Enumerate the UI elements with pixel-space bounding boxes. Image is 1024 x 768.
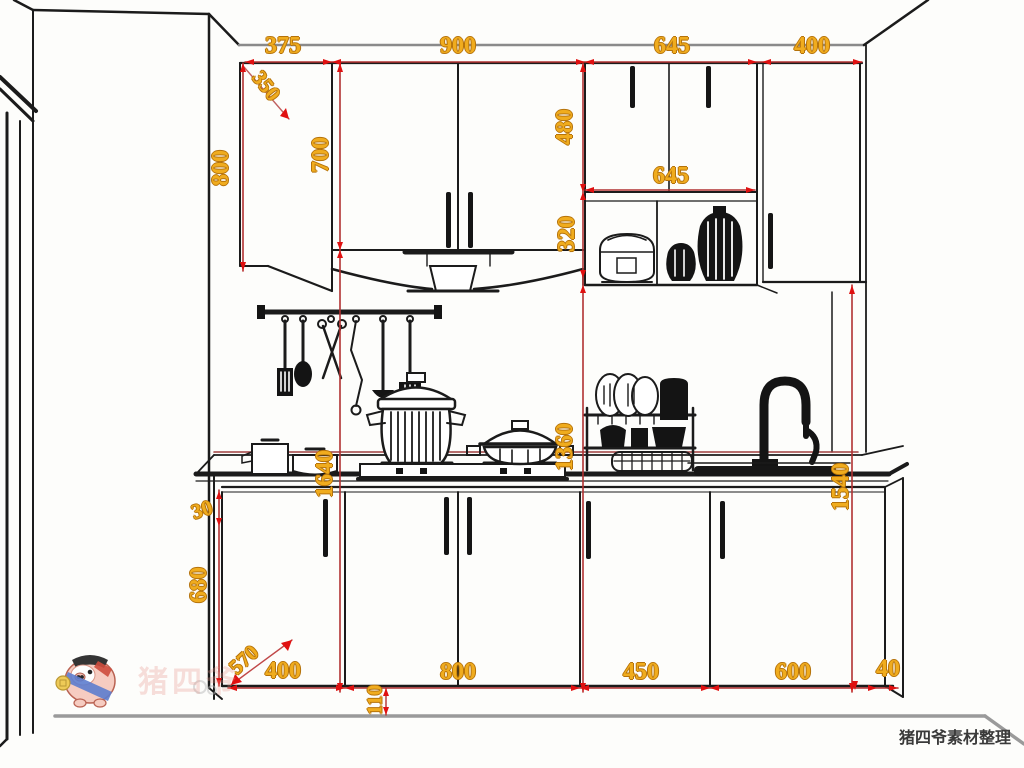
- pig-mascot-logo: [56, 655, 115, 707]
- dim-toekick-110: 110: [365, 685, 386, 715]
- scissors: [323, 326, 341, 378]
- floor-line: [55, 716, 1024, 744]
- dim-width-900: 900: [440, 34, 476, 58]
- faucet: [752, 381, 817, 466]
- upper-cabinets: [240, 63, 866, 293]
- dim-height-480: 480: [553, 109, 577, 145]
- door-handle: [768, 213, 773, 269]
- dim-base-400: 400: [265, 659, 301, 683]
- dim-width-400: 400: [794, 34, 830, 58]
- rice-cooker: [600, 234, 654, 282]
- door-handle: [446, 192, 451, 248]
- dim-height-700: 700: [309, 137, 333, 173]
- stove: [358, 463, 567, 479]
- door-handle: [467, 497, 472, 555]
- drawing-canvas: [0, 0, 1024, 768]
- hanging-hook: [351, 321, 362, 406]
- dim-height-1640: 1640: [313, 450, 337, 498]
- door-handle: [720, 501, 725, 559]
- dim-height-680: 680: [187, 567, 211, 603]
- dish-rack: [585, 374, 695, 471]
- range-hood: [332, 252, 583, 291]
- dim-width-645: 645: [654, 34, 690, 58]
- room-walls: [0, 0, 928, 746]
- dim-base-40: 40: [876, 657, 900, 681]
- door-handle: [706, 66, 711, 108]
- credit-text: 猪四爷素材整理: [899, 724, 1011, 748]
- door-handle: [468, 192, 473, 248]
- dim-height-800: 800: [209, 150, 233, 186]
- door-handle: [323, 499, 328, 557]
- watermark-text: 猪四爷: [138, 657, 240, 701]
- door-handle: [630, 66, 635, 108]
- dim-base-600: 600: [775, 660, 811, 684]
- dim-width-375: 375: [265, 34, 301, 58]
- dim-shelf-width-645: 645: [653, 164, 689, 188]
- dim-base-800: 800: [440, 660, 476, 684]
- door-handle: [586, 501, 591, 559]
- dim-shelf-height-320: 320: [555, 216, 579, 252]
- dim-height-1540: 1540: [829, 463, 853, 511]
- door-handle: [444, 497, 449, 555]
- dim-height-1360: 1360: [553, 423, 577, 471]
- dim-base-450: 450: [623, 660, 659, 684]
- vases: [666, 206, 742, 281]
- kitchen-elevation-drawing: 375 900 645 400 350 800 700 480 645 320 …: [0, 0, 1024, 768]
